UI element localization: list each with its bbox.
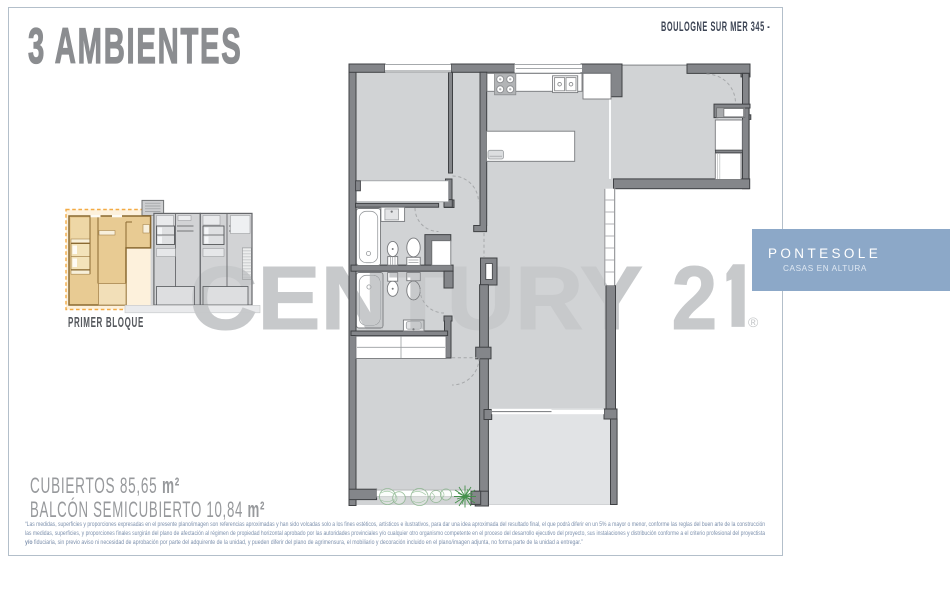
svg-text:CENTURY: CENTURY [189,249,643,349]
svg-text:®: ® [748,314,759,330]
svg-text:2: 2 [672,249,718,349]
